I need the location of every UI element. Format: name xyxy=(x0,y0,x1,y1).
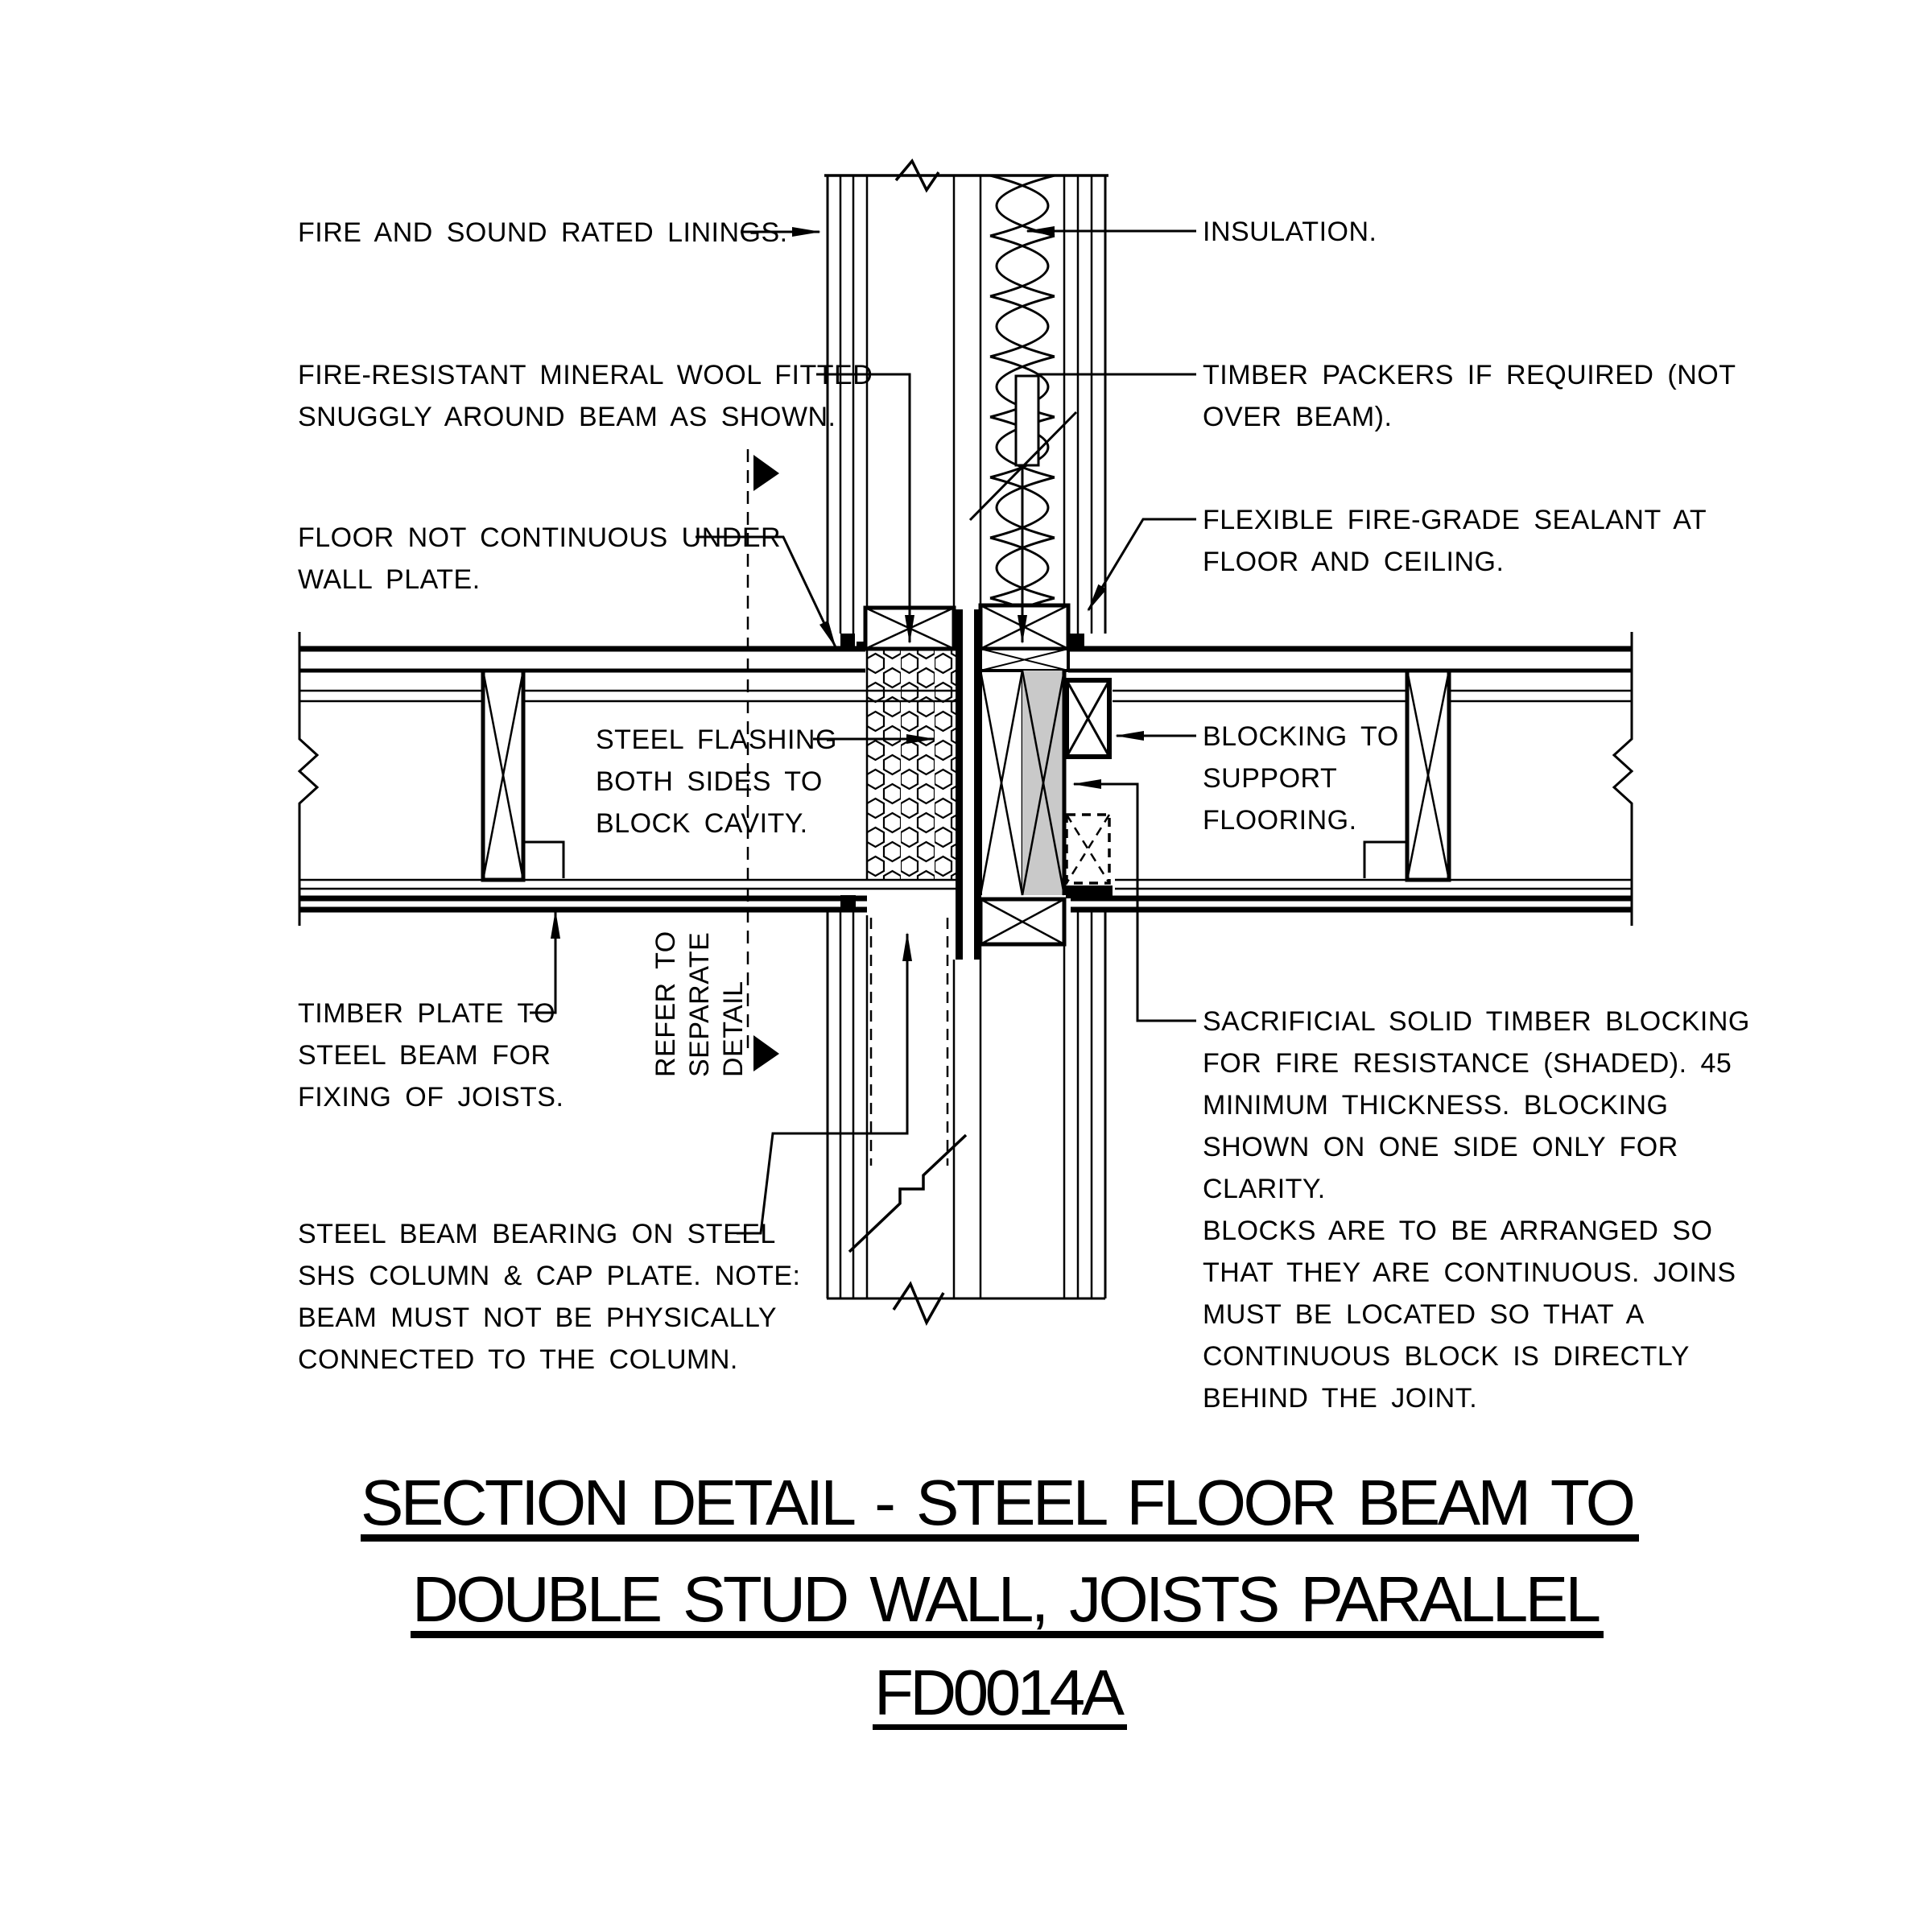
section-marker-top xyxy=(753,455,779,491)
steel-flashing-left xyxy=(956,609,963,960)
floor-left-break-edge xyxy=(299,632,317,926)
label-floor-not-continuous-2: WALL PLATE. xyxy=(298,564,481,595)
label-sealant-2: FLOOR AND CEILING. xyxy=(1203,547,1504,577)
label-steel-beam-1: STEEL BEAM BEARING ON STEEL xyxy=(298,1219,776,1249)
label-sealant-1: FLEXIBLE FIRE-GRADE SEALANT AT xyxy=(1203,505,1707,535)
label-steel-beam-4: CONNECTED TO THE COLUMN. xyxy=(298,1344,738,1375)
label-floor-not-continuous-1: FLOOR NOT CONTINUOUS UNDER xyxy=(298,522,781,553)
title-underline-1 xyxy=(361,1534,1639,1542)
label-sacrificial-8: MUST BE LOCATED SO THAT A xyxy=(1203,1299,1645,1330)
label-sacrificial-1: SACRIFICIAL SOLID TIMBER BLOCKING xyxy=(1203,1006,1750,1037)
label-refer-detail-1: REFER TO xyxy=(650,931,681,1077)
label-refer-detail-2: SEPARATE xyxy=(684,932,715,1077)
label-mineral-wool-2: SNUGGLY AROUND BEAM AS SHOWN. xyxy=(298,402,836,432)
sealant-floor-left xyxy=(840,634,855,649)
label-sacrificial-2: FOR FIRE RESISTANCE (SHADED). 45 xyxy=(1203,1048,1732,1079)
label-timber-packers-1: TIMBER PACKERS IF REQUIRED (NOT xyxy=(1203,360,1736,390)
wall-lower xyxy=(827,912,1105,1323)
label-linings: FIRE AND SOUND RATED LININGS. xyxy=(298,217,788,248)
section-detail-drawing: FIRE AND SOUND RATED LININGS. FIRE-RESIS… xyxy=(0,0,1932,1932)
mineral-wool-hatch xyxy=(867,649,956,880)
sealant-ceiling-right xyxy=(1066,885,1113,898)
wall-bottom-break-mark xyxy=(894,1284,943,1323)
wall-upper xyxy=(824,161,1108,671)
label-sacrificial-5: CLARITY. xyxy=(1203,1174,1326,1204)
label-sacrificial-4: SHOWN ON ONE SIDE ONLY FOR xyxy=(1203,1132,1678,1162)
leader-floor-not-continuous xyxy=(696,537,836,647)
label-sacrificial-9: CONTINUOUS BLOCK IS DIRECTLY xyxy=(1203,1341,1690,1372)
label-timber-plate-3: FIXING OF JOISTS. xyxy=(298,1082,563,1113)
drawing-sheet: FIRE AND SOUND RATED LININGS. FIRE-RESIS… xyxy=(0,0,1932,1932)
label-refer-detail-3: DETAIL xyxy=(718,980,749,1077)
label-timber-plate-2: STEEL BEAM FOR xyxy=(298,1040,551,1071)
label-steel-beam-2: SHS COLUMN & CAP PLATE. NOTE: xyxy=(298,1261,800,1291)
label-steel-flashing-2: BOTH SIDES TO xyxy=(596,766,823,797)
sealant-ceiling-left xyxy=(840,895,856,912)
label-sacrificial-7: THAT THEY ARE CONTINUOUS. JOINS xyxy=(1203,1257,1736,1288)
section-marker-bottom xyxy=(753,1035,779,1071)
floor-right xyxy=(1068,632,1632,926)
label-sacrificial-6: BLOCKS ARE TO BE ARRANGED SO xyxy=(1203,1216,1713,1246)
sealant-floor-right xyxy=(1070,634,1084,649)
title-underline-2 xyxy=(411,1631,1604,1638)
label-timber-packers-2: OVER BEAM). xyxy=(1203,402,1392,432)
timber-packer xyxy=(1016,376,1038,465)
label-sacrificial-3: MINIMUM THICKNESS. BLOCKING xyxy=(1203,1090,1669,1121)
label-sacrificial-10: BEHIND THE JOINT. xyxy=(1203,1383,1477,1414)
leader-steel-beam xyxy=(737,934,907,1233)
label-steel-flashing-1: STEEL FLASHING xyxy=(596,724,837,755)
floor-right-timber-plate xyxy=(1364,842,1407,878)
floor-left-timber-plate xyxy=(523,842,563,878)
floor-right-break-edge xyxy=(1614,632,1632,926)
label-insulation: INSULATION. xyxy=(1203,217,1377,247)
title-code: FD0014A xyxy=(874,1657,1125,1728)
title-block: SECTION DETAIL - STEEL FLOOR BEAM TO DOU… xyxy=(361,1467,1639,1730)
title-underline-3 xyxy=(873,1724,1127,1730)
shs-column-dashed xyxy=(871,918,947,1166)
label-blocking-support-2: SUPPORT xyxy=(1203,763,1337,794)
title-line-2: DOUBLE STUD WALL, JOISTS PARALLEL xyxy=(412,1563,1602,1635)
label-mineral-wool-1: FIRE-RESISTANT MINERAL WOOL FITTED xyxy=(298,360,873,390)
flooring-end-seal xyxy=(857,642,867,649)
title-line-1: SECTION DETAIL - STEEL FLOOR BEAM TO xyxy=(361,1467,1637,1538)
label-blocking-support-3: FLOORING. xyxy=(1203,805,1357,836)
label-blocking-support-1: BLOCKING TO xyxy=(1203,721,1399,752)
label-steel-flashing-3: BLOCK CAVITY. xyxy=(596,808,808,839)
label-timber-plate-1: TIMBER PLATE TO xyxy=(298,998,555,1029)
hidden-blocking-dashed xyxy=(1067,815,1109,883)
label-steel-beam-3: BEAM MUST NOT BE PHYSICALLY xyxy=(298,1302,777,1333)
